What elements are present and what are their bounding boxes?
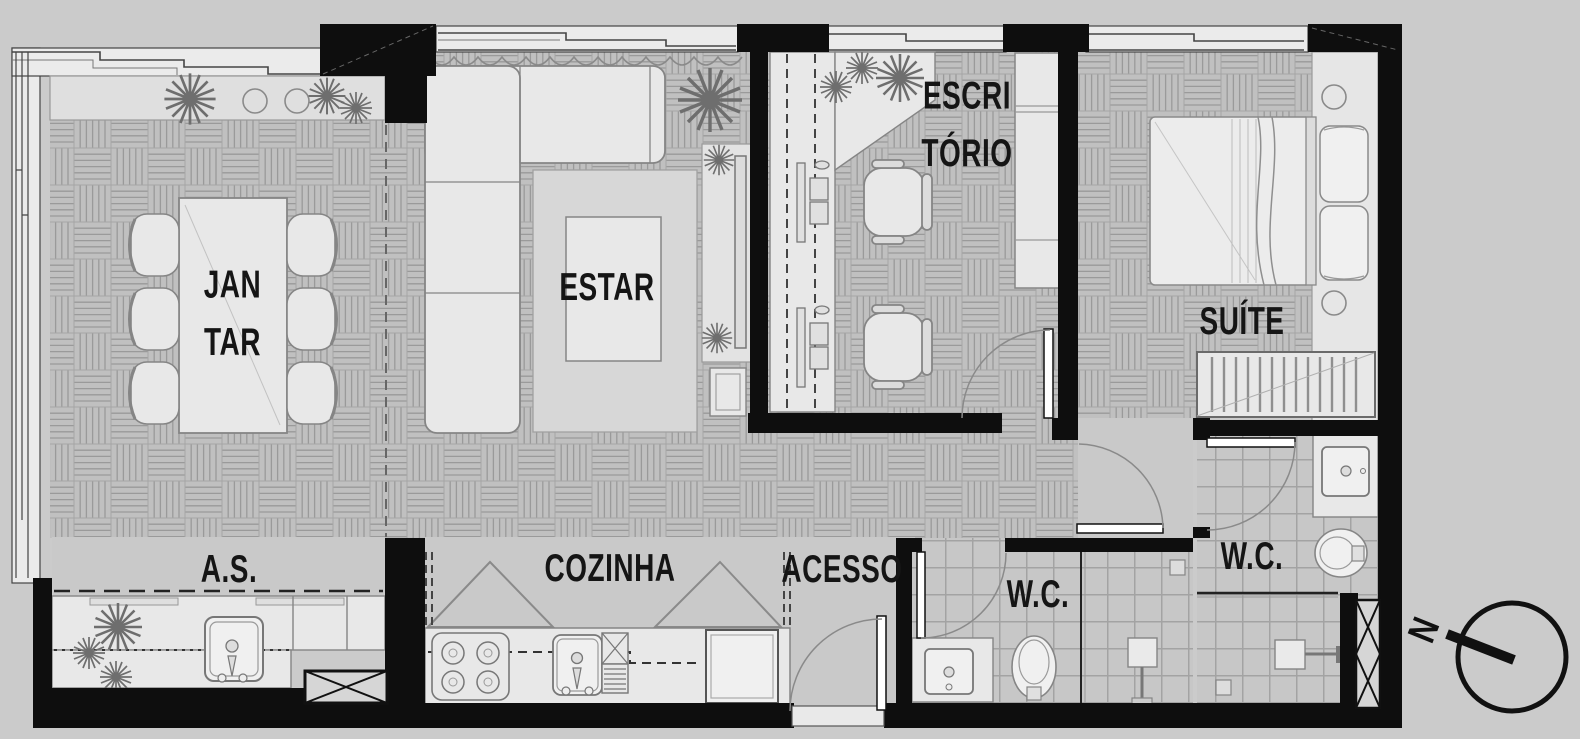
window-suite <box>1086 26 1308 52</box>
compass <box>1447 603 1566 711</box>
room-label-jantar: JAN TAR <box>175 256 290 371</box>
bed <box>1150 117 1368 285</box>
room-label-suite: SUÍTE <box>1177 292 1307 349</box>
sideboard <box>50 73 385 124</box>
room-label-wc-social: W.C. <box>988 565 1088 622</box>
room-label-acesso: ACESSO <box>772 540 912 597</box>
window-office <box>826 26 1006 52</box>
wall-office-suite <box>1058 50 1078 418</box>
room-label-cozinha: COZINHA <box>540 539 680 596</box>
dishwasher-icon <box>602 633 628 693</box>
pillow <box>1320 206 1368 280</box>
floor-plan: JAN TAR ESTAR ESCRI TÓRIO SUÍTE A.S. COZ… <box>0 0 1580 739</box>
drain-icon <box>1170 560 1185 575</box>
side-table <box>710 368 746 416</box>
room-label-escritorio: ESCRI TÓRIO <box>902 67 1032 182</box>
window-living <box>436 26 738 52</box>
wall-estar-office <box>750 50 768 418</box>
wall-right <box>1378 24 1402 728</box>
toilet-icon <box>1315 529 1367 577</box>
fridge-icon <box>706 630 778 703</box>
pillow <box>1320 126 1368 202</box>
drain-icon <box>1216 680 1231 695</box>
laundry-sink-icon <box>205 617 263 682</box>
room-label-area-servico: A.S. <box>169 540 289 597</box>
entry-threshold <box>792 706 884 726</box>
toilet-icon <box>1012 636 1056 700</box>
wardrobe <box>1197 352 1375 417</box>
shaft-icon <box>305 671 387 703</box>
room-label-estar: ESTAR <box>542 258 672 315</box>
stove-icon <box>432 633 509 700</box>
room-label-wc-suite: W.C. <box>1202 527 1302 584</box>
shaft-icon <box>1356 600 1380 708</box>
headboard <box>1306 117 1316 285</box>
kitchen-sink-icon <box>553 635 602 695</box>
tv-icon <box>735 156 746 348</box>
floor-corridor <box>1078 418 1193 538</box>
